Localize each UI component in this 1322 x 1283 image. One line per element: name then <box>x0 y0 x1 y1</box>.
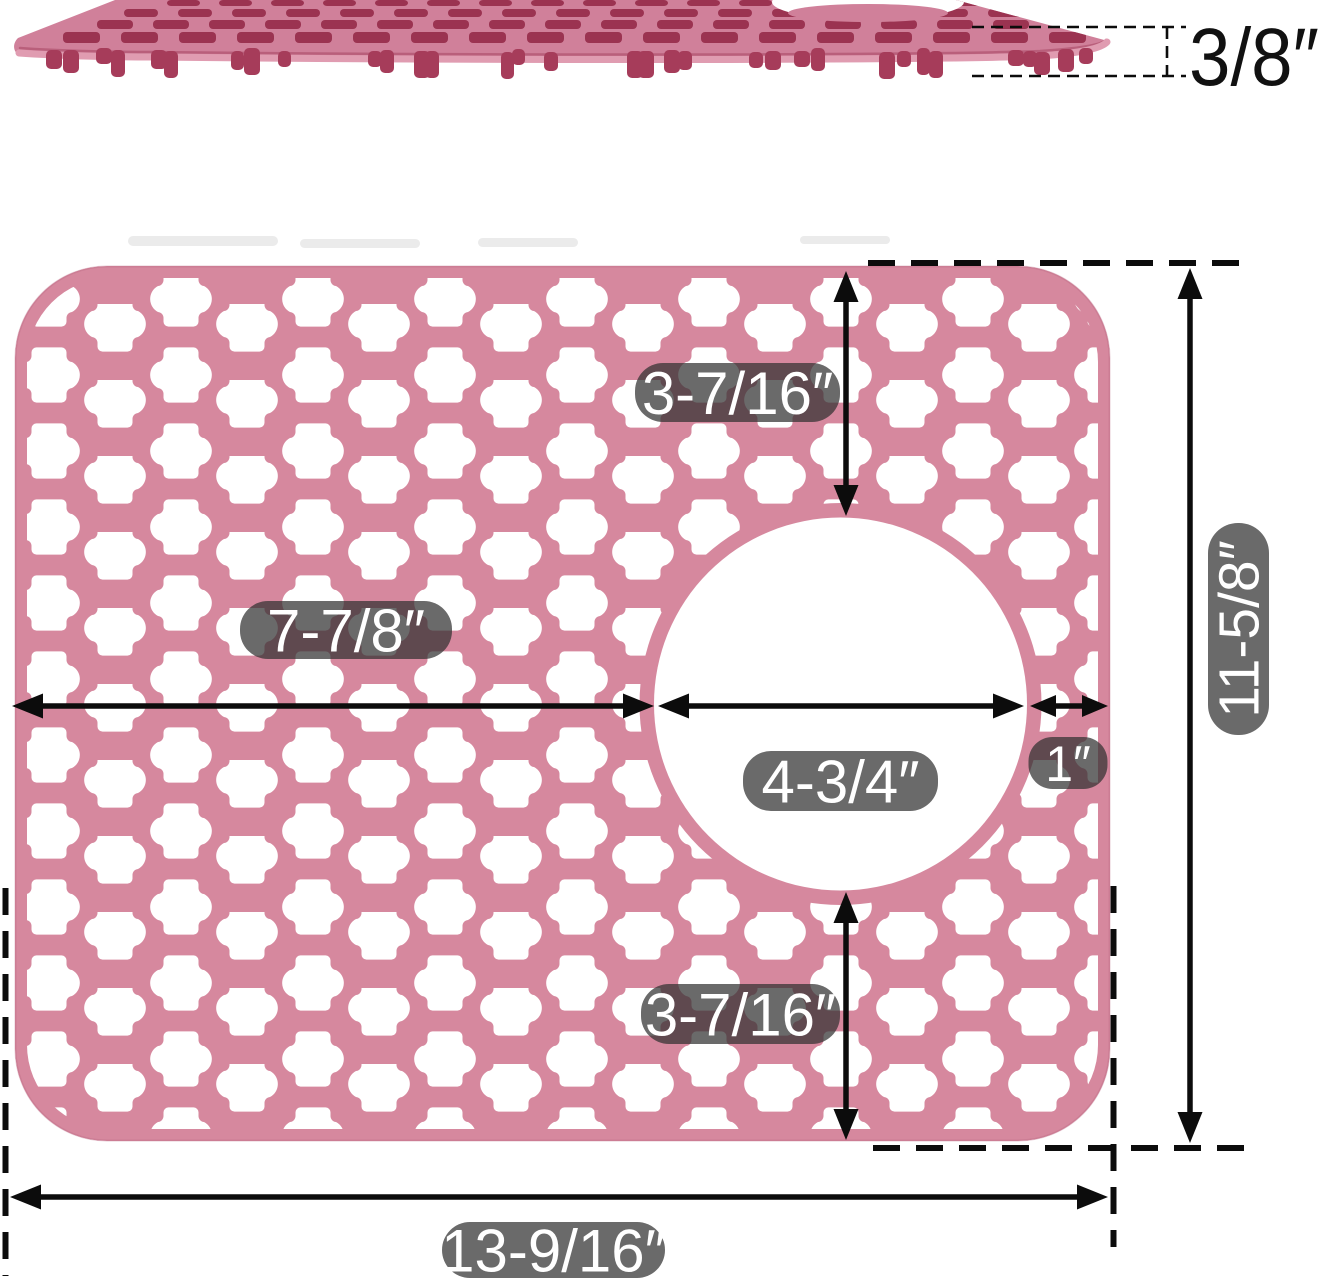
svg-text:13-9/16″: 13-9/16″ <box>441 1217 666 1278</box>
svg-text:1″: 1″ <box>1045 736 1091 792</box>
svg-text:3-7/16″: 3-7/16″ <box>642 360 833 427</box>
svg-text:4-3/4″: 4-3/4″ <box>762 748 920 815</box>
svg-text:3/8″: 3/8″ <box>1189 12 1319 103</box>
svg-text:3-7/16″: 3-7/16″ <box>645 981 836 1048</box>
svg-text:11-5/8″: 11-5/8″ <box>1208 540 1272 718</box>
svg-text:7-7/8″: 7-7/8″ <box>267 597 425 664</box>
